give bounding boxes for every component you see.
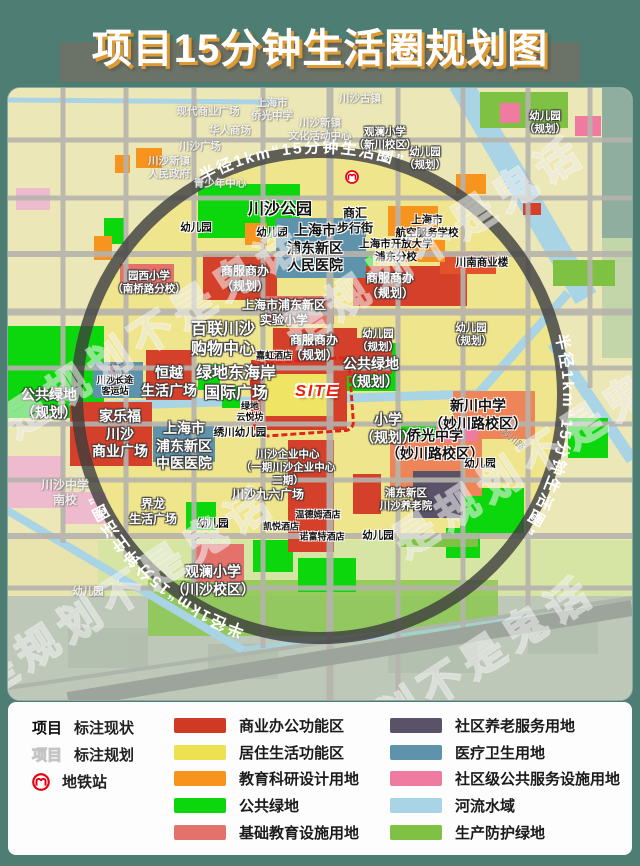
legend-column-left: 商业办公功能区居住生活功能区教育科研设计用地公共绿地基础教育设施用地 — [174, 712, 359, 846]
map-label: 川南商业楼 — [456, 256, 509, 269]
map-label: 商服商办 （规划） — [290, 333, 338, 363]
legend-label: 居住生活功能区 — [239, 742, 344, 763]
legend-item: 社区养老服务用地 — [390, 712, 620, 739]
legend-swatch — [390, 825, 442, 840]
map-label: 幼儿园 （规划） — [450, 322, 492, 348]
map-label: 幼儿园 — [180, 221, 212, 234]
legend-item: 居住生活功能区 — [174, 739, 359, 766]
legend-label: 教育科研设计用地 — [239, 768, 359, 789]
page-title: 项目15分钟生活圈规划图 — [0, 16, 640, 74]
map-label: 川沙新镇 人民政府 — [148, 155, 190, 181]
map-label: 川沙古镇 — [339, 92, 381, 105]
map-label: 川沙企业中心 （一期川沙企业中心 二期） — [241, 448, 336, 487]
legend-swatch — [174, 718, 226, 733]
legend-item: 教育科研设计用地 — [174, 766, 359, 793]
map-label: 园西小学 （南桥路分校） — [112, 270, 186, 296]
map-label: 公共绿地 （规划） — [21, 387, 77, 422]
planned-label: 标注规划 — [74, 744, 134, 765]
legend-marker-metro: 地铁站 — [32, 768, 134, 795]
map-label: 幼儿园 （规划） — [404, 146, 446, 172]
map-label: 上海市开放大学 浦东分校 — [359, 238, 433, 264]
legend-label: 生产防护绿地 — [455, 822, 545, 843]
legend-swatch — [390, 798, 442, 813]
map-label: 幼儿园 （规划） — [524, 110, 566, 136]
legend-label: 基础教育设施用地 — [239, 822, 359, 843]
map-label: 新川中学 （妙川路校区） — [429, 398, 527, 433]
legend-column-right: 社区养老服务用地医疗卫生用地社区级公共服务设施用地河流水域生产防护绿地 — [390, 712, 620, 846]
planning-map: 半径1km“15分钟生活圈” 半径1km“15分钟生活圈” 半径1km“15分钟… — [8, 88, 632, 700]
legend-markers: 项目 标注现状 项目 标注规划 地铁站 — [32, 714, 134, 795]
map-label: 上海市 航空服务学校 — [396, 214, 459, 240]
current-label: 标注现状 — [74, 717, 134, 738]
map-label: 商服商办 （规划） — [221, 264, 269, 294]
map-label: 幼儿园 — [256, 226, 288, 239]
metro-station-icon — [345, 170, 359, 184]
legend-swatch — [174, 825, 226, 840]
legend-item: 生产防护绿地 — [390, 819, 620, 846]
legend-label: 公共绿地 — [239, 795, 299, 816]
legend-swatch — [174, 771, 226, 786]
map-label: 绿地东海岸 国际广场 — [196, 364, 276, 404]
legend-item: 医疗卫生用地 — [390, 739, 620, 766]
legend-swatch — [174, 798, 226, 813]
current-sample-text: 项目 — [32, 717, 62, 738]
map-label: 幼儿园 — [72, 585, 104, 598]
map-label: 现代商业广场 — [177, 105, 240, 118]
map-label: 商汇 步行街 — [337, 206, 373, 236]
map-label: 恒越 生活广场 — [141, 365, 197, 400]
map-label: 界龙 生活广场 — [129, 497, 177, 527]
legend-item: 河流水域 — [390, 792, 620, 819]
map-label: 绣川幼儿园 — [214, 426, 267, 439]
map-label: 川沙广场 — [179, 140, 221, 153]
map-label: 商服商办 （规划） — [366, 271, 414, 301]
map-label: 上海市 侨光中学 — [251, 97, 293, 123]
map-label: 川沙九六广场 — [232, 488, 304, 503]
legend-marker-current: 项目 标注现状 — [32, 714, 134, 741]
legend-swatch — [390, 771, 442, 786]
legend-item: 商业办公功能区 — [174, 712, 359, 739]
map-label: 幼儿园 — [464, 457, 496, 470]
map-label: 嘉虹酒店 — [256, 350, 292, 361]
map-label: 家乐福 川沙 商业广场 — [92, 408, 148, 461]
legend-label: 商业办公功能区 — [239, 715, 344, 736]
legend-swatch — [390, 745, 442, 760]
legend-label: 社区养老服务用地 — [455, 715, 575, 736]
map-label: 幼儿园 — [197, 517, 229, 530]
map-label: 凯悦酒店 — [263, 521, 299, 532]
map-label: 绿地 云悦坊 — [236, 401, 263, 424]
legend-label: 医疗卫生用地 — [455, 742, 545, 763]
legend-label: 河流水域 — [455, 795, 515, 816]
map-label: 川沙长途 客运站 — [97, 375, 133, 398]
site-label: SITE — [295, 382, 339, 402]
map-label: 青少年中心 — [194, 177, 247, 190]
map-label: 川沙公园 — [248, 200, 312, 220]
map-label: 温德姆酒店 — [295, 509, 340, 520]
legend-item: 公共绿地 — [174, 792, 359, 819]
map-label: 百联川沙 购物中心 — [191, 320, 255, 360]
map-label: 诺富特酒店 — [299, 531, 344, 542]
map-label: 上海市 浦东新区 人民医院 — [287, 222, 343, 275]
map-label: 浦东新区 川沙养老院 — [380, 487, 433, 513]
legend-swatch — [174, 745, 226, 760]
map-label: 华人商场 — [209, 124, 251, 137]
planning-poster: 项目15分钟生活圈规划图 — [0, 0, 640, 866]
metro-logo-icon — [32, 773, 50, 791]
map-label: 幼儿园 （规划） — [357, 328, 399, 354]
map-label: 上海市 浦东新区 中医医院 — [156, 420, 212, 473]
map-label: 川沙中学 南校 — [41, 478, 89, 508]
map-label: 川沙新镇 文化活动中心 — [289, 117, 352, 143]
map-label: 观澜小学 （川沙校区） — [171, 564, 255, 599]
legend-item: 基础教育设施用地 — [174, 819, 359, 846]
planned-sample-text: 项目 — [32, 744, 62, 765]
legend-item: 社区级公共服务设施用地 — [390, 766, 620, 793]
map-label: 幼儿园 — [362, 529, 394, 542]
legend-swatch — [390, 718, 442, 733]
legend-panel: 项目 标注现状 项目 标注规划 地铁站 商业办公功能区居住生活功能区教育科研设计… — [8, 702, 632, 855]
legend-label: 社区级公共服务设施用地 — [455, 768, 620, 789]
metro-label: 地铁站 — [62, 771, 107, 792]
legend-marker-planned: 项目 标注规划 — [32, 741, 134, 768]
map-label: 公共绿地 （规划） — [343, 356, 399, 391]
